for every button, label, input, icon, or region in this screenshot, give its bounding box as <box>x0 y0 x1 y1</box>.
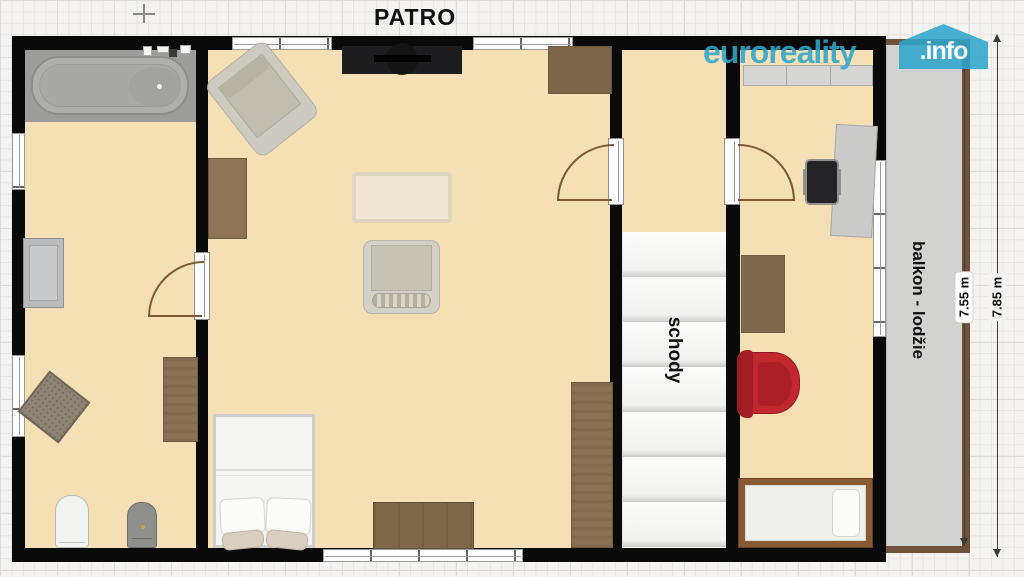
arrow-down-icon <box>960 538 968 546</box>
toilet-icon <box>55 495 89 548</box>
bidet-icon <box>127 502 157 548</box>
bathtub-icon <box>31 56 189 115</box>
stairs-label: schody <box>663 317 685 384</box>
tv-screen-icon <box>374 55 431 62</box>
bath-fixture-icon <box>143 46 152 56</box>
single-bed-icon <box>738 478 873 548</box>
red-armchair-icon <box>740 352 800 414</box>
window-left-2 <box>12 355 25 437</box>
bath-fixture-icon <box>180 45 191 54</box>
window-left-1 <box>12 133 25 190</box>
wardrobe-icon <box>571 382 613 548</box>
brand-tld: .info <box>920 37 968 66</box>
wall-right <box>873 337 886 562</box>
window-bottom <box>323 549 523 562</box>
window-top-1 <box>232 37 332 50</box>
bench-icon <box>373 502 474 549</box>
stair-landing-floor <box>622 50 726 232</box>
living-cabinet-icon <box>548 46 612 94</box>
office-chair-icon <box>805 159 839 205</box>
bathroom-cabinet-icon <box>163 357 198 442</box>
bath-fixture-icon <box>169 49 177 57</box>
wall-bathroom-living <box>196 50 208 252</box>
arrow-up-icon <box>993 34 1001 42</box>
window-study-balcony <box>873 160 886 337</box>
study-shelf-icon <box>741 255 785 333</box>
dimension-label: 7.85 m <box>989 273 1006 321</box>
crosshair-icon <box>143 4 145 23</box>
bath-fixture-icon <box>157 46 169 53</box>
arrow-down-icon <box>993 549 1001 557</box>
living-rug-icon <box>352 172 452 223</box>
doormat-icon <box>208 158 247 239</box>
balcony-label: balkon - lodžie <box>908 241 928 359</box>
staircase <box>622 232 727 548</box>
floorplan-canvas: PATRO <box>0 0 1024 577</box>
dimension-label: 7.55 m <box>955 271 974 323</box>
armchair-icon <box>363 240 440 314</box>
page-title: PATRO <box>374 4 456 31</box>
balcony-railing-bottom <box>886 546 970 553</box>
brand-wordmark: euroreality <box>703 34 856 71</box>
brand-house-icon: .info <box>899 24 988 69</box>
sink-icon <box>23 238 64 308</box>
